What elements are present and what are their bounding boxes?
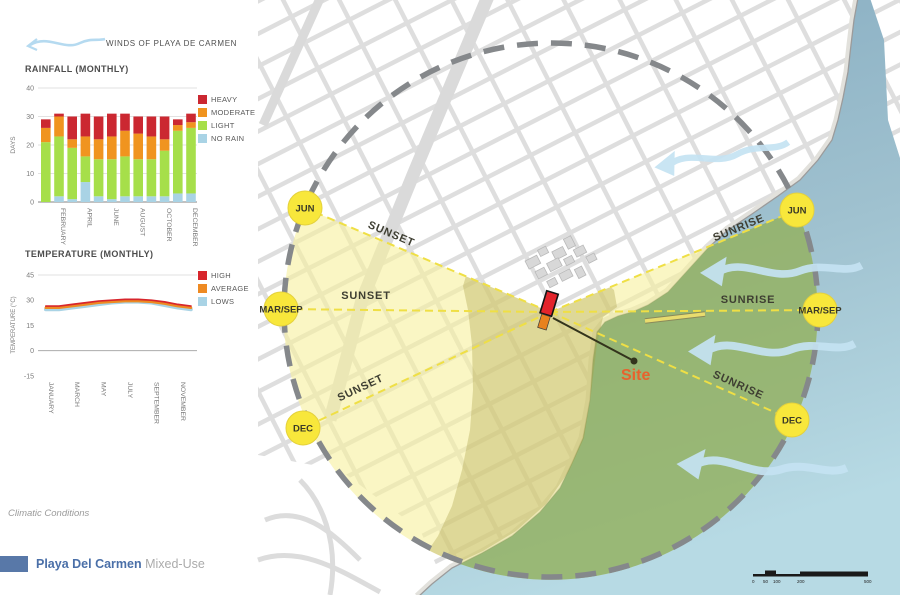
y-tick-label: 40 <box>26 86 34 93</box>
rain-bar-segment <box>54 196 64 202</box>
temperature-chart-title: TEMPERATURE (MONTHLY) <box>25 249 153 259</box>
legend-swatch <box>198 121 207 130</box>
rain-bar-segment <box>54 136 64 196</box>
rain-bar-segment <box>81 156 91 182</box>
x-tick-label: APRIL <box>86 208 93 228</box>
rain-bar-segment <box>81 182 91 202</box>
temperature-plot-area: 4530150-15JANUARYMARCHMAYJULYSEPTEMBERNO… <box>24 273 197 425</box>
rain-bar-segment <box>67 139 77 148</box>
rain-bar-segment <box>160 139 170 150</box>
project-title-sub: Mixed-Use <box>145 557 205 571</box>
legend-swatch <box>198 271 207 280</box>
legend-item: LOWS <box>198 297 268 306</box>
rain-bar-segment <box>94 117 104 140</box>
y-tick-label: 0 <box>30 200 34 207</box>
sun-marker-dec-west: DEC <box>293 424 313 435</box>
y-tick-label: -15 <box>24 373 34 380</box>
rain-bar-segment <box>173 125 183 131</box>
temperature-y-axis-label: TEMPERATURE (°C) <box>11 296 17 353</box>
scale-50: 50 <box>763 579 769 584</box>
scale-500: 500 <box>864 579 872 584</box>
legend-swatch <box>198 284 207 293</box>
rain-bar-segment <box>120 196 130 202</box>
rain-bar-segment <box>186 128 196 194</box>
rain-bar-segment <box>147 196 157 202</box>
rain-bar-segment <box>94 139 104 159</box>
x-tick-label: SEPTEMBER <box>152 382 159 424</box>
rainfall-chart-title: RAINFALL (MONTHLY) <box>25 64 129 74</box>
legend-label: LOWS <box>211 297 234 306</box>
rain-bar-segment <box>160 117 170 140</box>
sun-marker-jun-east: JUN <box>787 206 806 217</box>
legend-item: HEAVY <box>198 95 268 104</box>
sheet-caption: Climatic Conditions <box>8 508 89 519</box>
rain-bar-segment <box>133 196 143 202</box>
title-bar-accent <box>0 556 28 572</box>
x-tick-label: MARCH <box>73 382 80 407</box>
legend-swatch <box>198 108 207 117</box>
rain-bar-segment <box>133 159 143 196</box>
rain-bar-segment <box>186 122 196 128</box>
y-tick-label: 30 <box>26 114 34 121</box>
rain-bar-segment <box>160 151 170 197</box>
rain-bar-segment <box>107 199 117 202</box>
legend-swatch <box>198 95 207 104</box>
y-tick-label: 30 <box>26 298 34 305</box>
legend-swatch <box>198 297 207 306</box>
rain-bar-segment <box>67 148 77 199</box>
x-tick-label: JULY <box>126 382 133 399</box>
rain-bar-segment <box>54 117 64 137</box>
x-tick-label: NOVEMBER <box>179 382 186 421</box>
rain-bar-segment <box>173 193 183 202</box>
climatic-conditions-sheet: SUNSET SUNSET SUNSET SUNRISE SUNRISE SUN… <box>0 0 900 595</box>
legend-item: LIGHT <box>198 121 268 130</box>
rain-bar-segment <box>94 196 104 202</box>
legend-label: AVERAGE <box>211 284 249 293</box>
rain-bar-segment <box>107 114 117 137</box>
rain-bar-segment <box>107 159 117 199</box>
rain-bar-segment <box>41 128 51 142</box>
scale-100: 100 <box>773 579 781 584</box>
rain-bar-segment <box>41 119 51 128</box>
wind-legend-label: WINDS OF PLAYA DE CARMEN <box>106 39 237 48</box>
rainfall-chart: DAYS 010203040FEBRUARYAPRILJUNEAUGUSTOCT… <box>5 82 210 262</box>
sun-marker-dec-east: DEC <box>782 416 802 427</box>
sun-marker-jun-west: JUN <box>295 204 314 215</box>
legend-item: AVERAGE <box>198 284 268 293</box>
rain-bar-segment <box>160 196 170 202</box>
rain-bar-segment <box>81 114 91 137</box>
rain-bar-segment <box>41 142 51 202</box>
y-tick-label: 15 <box>26 323 34 330</box>
rainfall-y-axis-label: DAYS <box>10 136 17 154</box>
legend-swatch <box>198 134 207 143</box>
scale-200: 200 <box>797 579 805 584</box>
x-tick-label: JUNE <box>112 208 119 226</box>
rain-bar-segment <box>120 131 130 157</box>
legend-item: HIGH <box>198 271 268 280</box>
rainfall-legend: HEAVYMODERATELIGHTNO RAIN <box>198 95 268 147</box>
rain-bar-segment <box>67 117 77 140</box>
rain-bar-segment <box>107 136 117 159</box>
rain-bar-segment <box>81 136 91 156</box>
legend-label: NO RAIN <box>211 134 244 143</box>
x-tick-label: OCTOBER <box>165 208 172 242</box>
project-title-main: Playa Del Carmen <box>36 557 142 571</box>
x-tick-label: AUGUST <box>138 208 145 236</box>
rain-bar-segment <box>94 159 104 196</box>
rain-bar-segment <box>147 159 157 196</box>
sun-marker-marsep-east: MAR/SEP <box>798 306 842 317</box>
x-tick-label: FEBRUARY <box>59 208 66 245</box>
rain-bar-segment <box>120 156 130 196</box>
y-tick-label: 20 <box>26 143 34 150</box>
project-title: Playa Del Carmen Mixed-Use <box>36 557 205 571</box>
rain-bar-segment <box>173 131 183 194</box>
rain-bar-segment <box>133 134 143 160</box>
y-tick-label: 10 <box>26 171 34 178</box>
rainfall-plot-area: 010203040FEBRUARYAPRILJUNEAUGUSTOCTOBERD… <box>26 86 198 247</box>
rain-bar-segment <box>120 114 130 131</box>
legend-item: MODERATE <box>198 108 268 117</box>
rain-bar-segment <box>54 114 64 117</box>
legend-label: LIGHT <box>211 121 235 130</box>
rain-bar-segment <box>173 119 183 125</box>
sunset-label-equinox: SUNSET <box>341 290 390 302</box>
legend-label: HEAVY <box>211 95 237 104</box>
rain-bar-segment <box>147 136 157 159</box>
temperature-legend: HIGHAVERAGELOWS <box>198 271 268 310</box>
temperature-chart: TEMPERATURE (°C) 4530150-15JANUARYMARCHM… <box>5 262 210 437</box>
wind-legend-arrow-icon <box>22 30 108 56</box>
y-tick-label: 45 <box>26 273 34 280</box>
rain-bar-segment <box>186 114 196 123</box>
site-label: Site <box>621 367 650 384</box>
rain-bar-segment <box>133 117 143 134</box>
rain-bar-segment <box>147 117 157 137</box>
sunrise-label-equinox: SUNRISE <box>721 294 776 306</box>
legend-item: NO RAIN <box>198 134 268 143</box>
y-tick-label: 0 <box>30 348 34 355</box>
legend-label: MODERATE <box>211 108 255 117</box>
x-tick-label: MAY <box>100 382 107 397</box>
rain-bar-segment <box>186 193 196 202</box>
legend-label: HIGH <box>211 271 231 280</box>
x-tick-label: JANUARY <box>47 382 54 414</box>
rain-bar-segment <box>67 199 77 202</box>
x-tick-label: DECEMBER <box>191 208 198 247</box>
